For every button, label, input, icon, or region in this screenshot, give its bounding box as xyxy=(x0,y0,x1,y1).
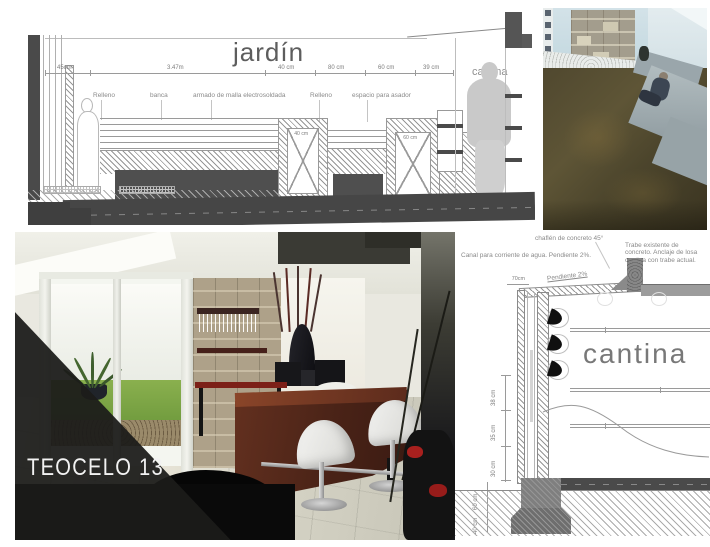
jardin-section-drawing: jardín 45cm 3.47m 40 cm 80 cm 60 cm 39 c… xyxy=(15,10,535,225)
dim-tick xyxy=(453,70,454,76)
shelf-tick xyxy=(660,387,661,393)
left-wall-dark xyxy=(28,35,40,200)
jardin-title: jardín xyxy=(233,37,304,68)
dim-line-70 xyxy=(507,284,529,285)
wall-outer-hatch xyxy=(517,290,525,484)
red-accent xyxy=(429,484,447,497)
presentation-board: jardín 45cm 3.47m 40 cm 80 cm 60 cm 39 c… xyxy=(0,0,710,547)
bar-stool-column-1 xyxy=(319,462,324,502)
dim-label: 60 cm xyxy=(378,65,394,71)
footing-dark-left2 xyxy=(55,208,91,225)
dim-tick-h xyxy=(501,446,511,447)
dim-tick xyxy=(265,70,266,76)
red-table-leg xyxy=(199,388,203,436)
dim-label-v: 30 cm xyxy=(491,461,497,477)
dim-label: 40 cm xyxy=(278,65,294,71)
hanging-wine-glasses xyxy=(199,314,257,332)
wall-shelf xyxy=(197,348,267,353)
left-wall-hatch xyxy=(65,65,74,187)
annotation-relleno-right: Relleno xyxy=(310,92,332,99)
faint-circle xyxy=(651,292,667,306)
column-notch xyxy=(522,34,532,48)
dim-chain-line xyxy=(505,375,506,482)
dim-label-v: 38 cm xyxy=(491,390,497,406)
dim-label: 3.47m xyxy=(167,65,184,71)
bar-stool-base-1 xyxy=(301,498,347,511)
niche-1 xyxy=(287,128,319,194)
red-table-top xyxy=(195,382,287,388)
shelf-bar xyxy=(437,124,463,128)
leader-line xyxy=(161,100,162,120)
niche-2 xyxy=(395,132,431,196)
wall-plant xyxy=(639,46,649,61)
footing-stem xyxy=(521,478,561,510)
dim-label-v: 35 cm xyxy=(491,425,497,441)
footing-base xyxy=(511,508,571,534)
person-outline-body xyxy=(77,111,99,193)
patio-bottom-shadow xyxy=(543,200,707,230)
stereo xyxy=(301,370,315,386)
annotation-pendiente: Pendiente 2% xyxy=(547,271,588,283)
dim-tick-h xyxy=(501,410,511,411)
cantina-detail-drawing: chaflén de concreto 45° Canal para corri… xyxy=(455,232,710,547)
asador-bench-slats xyxy=(328,130,386,148)
interior-photo: TEOCELO 13 xyxy=(15,232,455,540)
plant-leaf xyxy=(91,352,94,388)
wall-line xyxy=(505,48,506,202)
vase-stick xyxy=(297,266,299,332)
cantina-detail-title: cantina xyxy=(583,338,687,370)
grass-patch xyxy=(563,108,633,168)
roof-line xyxy=(45,38,427,39)
dimension-line-top xyxy=(45,73,453,74)
project-title: TEOCELO 13 xyxy=(27,454,164,482)
dim-label: 80 cm xyxy=(328,65,344,71)
shelf-bar xyxy=(437,150,463,154)
dim-tick xyxy=(415,70,416,76)
annotation-canal: Canal para corriente de agua. Pendiente … xyxy=(461,252,611,259)
column-dark-right xyxy=(505,12,522,48)
dim-label: 45cm xyxy=(57,65,72,71)
stone-light-block xyxy=(577,36,591,45)
left-wall-layers xyxy=(43,35,65,193)
dim-tick xyxy=(365,70,366,76)
niche-dim-2: 60 cm xyxy=(403,135,417,140)
person-silhouette-legs xyxy=(475,140,505,198)
shelf-tick xyxy=(605,327,606,333)
leader-line xyxy=(101,100,102,120)
shelf-unit xyxy=(437,110,463,172)
red-accent xyxy=(407,446,423,458)
ground-hatch-area xyxy=(455,490,710,536)
door-frame-right xyxy=(181,276,193,472)
cable-curve xyxy=(541,398,710,462)
vertical-annotation-text xyxy=(530,350,533,422)
stone-light-block xyxy=(603,22,618,31)
annotation-malla: armado de malla electrosoldada xyxy=(193,92,286,99)
leader-line xyxy=(367,100,368,122)
faint-circle xyxy=(597,292,613,306)
right-shelf-bar xyxy=(505,94,522,98)
dim-70cm: 70cm xyxy=(512,276,525,281)
leader-line xyxy=(211,100,212,120)
dim-tick xyxy=(45,70,46,76)
shelf-line xyxy=(570,328,710,332)
annotation-relleno-left: Relleno xyxy=(93,92,115,99)
dim-tick xyxy=(315,70,316,76)
shelf-line xyxy=(570,388,710,392)
niche-dim-1: 40 cm xyxy=(294,131,308,136)
right-shelf-bar xyxy=(505,126,522,130)
door-transom xyxy=(39,272,193,279)
bench-slats xyxy=(100,118,278,150)
dim-label: 39 cm xyxy=(423,65,439,71)
dim-tick-h xyxy=(501,480,511,481)
asador-hatch xyxy=(328,148,386,174)
dim-tick-h xyxy=(501,375,511,376)
dim-tick xyxy=(90,70,91,76)
annotation-asador: espacio para asador xyxy=(352,92,411,99)
wall-line xyxy=(455,38,456,202)
patio-photo xyxy=(543,8,707,230)
roof-line-sloped xyxy=(407,27,511,37)
right-shelf-bar xyxy=(505,158,522,162)
annotation-banca: banca xyxy=(150,92,168,99)
